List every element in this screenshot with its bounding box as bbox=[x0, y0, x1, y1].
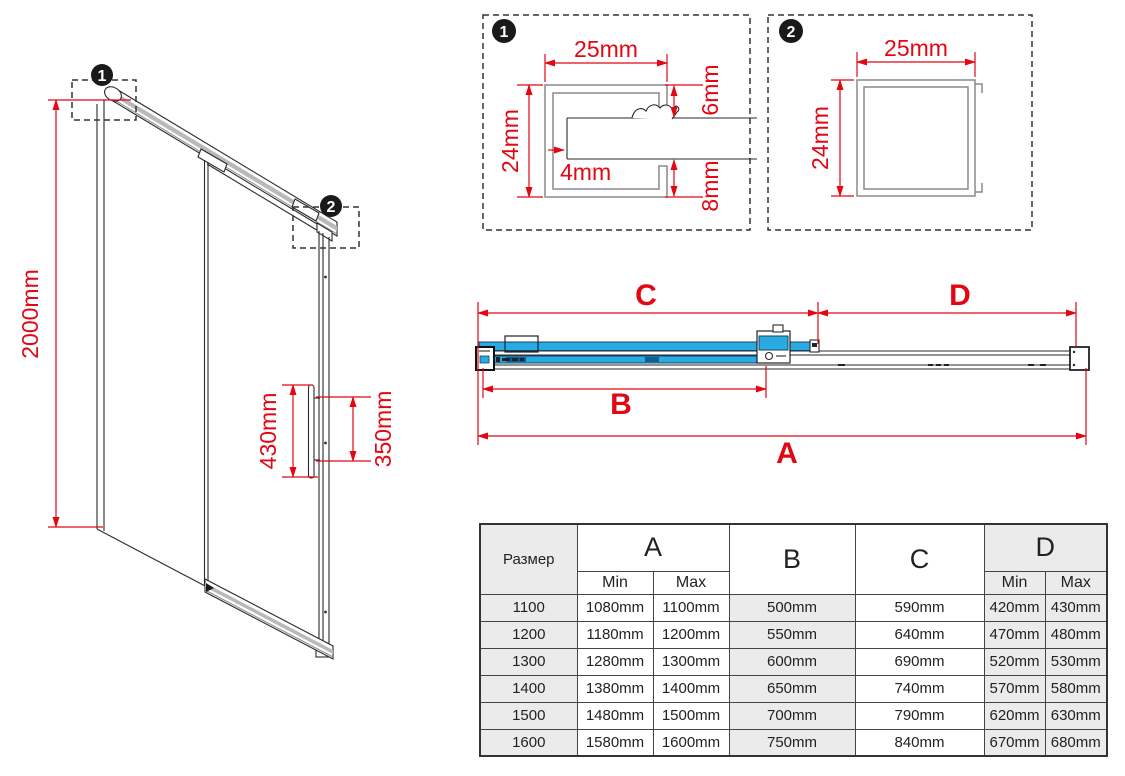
column-header-a: A bbox=[577, 524, 729, 571]
c-cell: 840mm bbox=[855, 729, 984, 756]
a-min-cell: 1480mm bbox=[577, 702, 653, 729]
profile-detail-2: 2 25mm 24mm bbox=[768, 15, 1032, 230]
handle-dim-label: 430mm bbox=[255, 393, 281, 470]
c-cell: 640mm bbox=[855, 621, 984, 648]
height-dim-label: 2000mm bbox=[17, 269, 43, 358]
plan-view-drawing: C D B A bbox=[476, 279, 1089, 470]
square-profile-outer bbox=[857, 80, 975, 196]
size-column-header: Размер bbox=[480, 524, 577, 594]
detail-1-top-inset-label: 6mm bbox=[697, 64, 723, 115]
d-max-header: Max bbox=[1045, 571, 1107, 594]
size-spec-table: Размер A B C D Min Max Min Max 1100 1080… bbox=[479, 523, 1108, 757]
column-header-d: D bbox=[984, 524, 1107, 571]
detail-1-number: 1 bbox=[500, 24, 509, 41]
b-cell: 550mm bbox=[729, 621, 855, 648]
d-max-cell: 630mm bbox=[1045, 702, 1107, 729]
a-min-cell: 1180mm bbox=[577, 621, 653, 648]
detail-1-height-label: 24mm bbox=[497, 109, 523, 173]
a-min-cell: 1580mm bbox=[577, 729, 653, 756]
fixed-panel-bottom-edge bbox=[97, 529, 207, 587]
glass-clip-seal bbox=[632, 105, 679, 119]
b-cell: 650mm bbox=[729, 675, 855, 702]
d-min-header: Min bbox=[984, 571, 1045, 594]
table-row: 1200 1180mm 1200mm 550mm 640mm 470mm 480… bbox=[480, 621, 1107, 648]
a-max-cell: 1500mm bbox=[653, 702, 729, 729]
plan-dim-c-label: C bbox=[635, 279, 657, 312]
b-cell: 750mm bbox=[729, 729, 855, 756]
plan-dim-b-label: B bbox=[610, 388, 632, 421]
wall-bracket-right bbox=[1070, 347, 1089, 370]
table-row: 1400 1380mm 1400mm 650mm 740mm 570mm 580… bbox=[480, 675, 1107, 702]
d-max-cell: 580mm bbox=[1045, 675, 1107, 702]
d-min-cell: 620mm bbox=[984, 702, 1045, 729]
size-cell: 1500 bbox=[480, 702, 577, 729]
c-cell: 590mm bbox=[855, 594, 984, 621]
detail-1-width-label: 25mm bbox=[574, 36, 638, 62]
d-max-cell: 680mm bbox=[1045, 729, 1107, 756]
size-cell: 1200 bbox=[480, 621, 577, 648]
detail-1-bottom-inset-label: 8mm bbox=[697, 160, 723, 211]
a-max-header: Max bbox=[653, 571, 729, 594]
a-max-cell: 1300mm bbox=[653, 648, 729, 675]
profile-detail-1: 1 25mm 24mm 6mm 8mm 4mm bbox=[483, 15, 757, 230]
d-min-cell: 520mm bbox=[984, 648, 1045, 675]
a-min-cell: 1380mm bbox=[577, 675, 653, 702]
square-profile-inner bbox=[864, 87, 968, 189]
shower-door-spec-sheet: 1 2 2000mm 430mm 350mm 1 2 bbox=[0, 0, 1125, 776]
b-cell: 600mm bbox=[729, 648, 855, 675]
d-max-cell: 430mm bbox=[1045, 594, 1107, 621]
size-cell: 1100 bbox=[480, 594, 577, 621]
a-max-cell: 1600mm bbox=[653, 729, 729, 756]
table-row: 1600 1580mm 1600mm 750mm 840mm 670mm 680… bbox=[480, 729, 1107, 756]
a-max-cell: 1200mm bbox=[653, 621, 729, 648]
a-min-cell: 1080mm bbox=[577, 594, 653, 621]
table-row: 1100 1080mm 1100mm 500mm 590mm 420mm 430… bbox=[480, 594, 1107, 621]
d-min-cell: 570mm bbox=[984, 675, 1045, 702]
table-row: 1500 1480mm 1500mm 700mm 790mm 620mm 630… bbox=[480, 702, 1107, 729]
b-cell: 500mm bbox=[729, 594, 855, 621]
callout-1-number: 1 bbox=[98, 68, 107, 85]
door-handle bbox=[309, 385, 315, 478]
size-table: Размер A B C D Min Max Min Max 1100 1080… bbox=[479, 523, 1108, 757]
isometric-door-drawing: 1 2 2000mm 430mm 350mm bbox=[17, 64, 396, 659]
size-cell: 1300 bbox=[480, 648, 577, 675]
c-cell: 790mm bbox=[855, 702, 984, 729]
d-min-cell: 470mm bbox=[984, 621, 1045, 648]
d-min-cell: 670mm bbox=[984, 729, 1045, 756]
size-cell: 1600 bbox=[480, 729, 577, 756]
column-header-c: C bbox=[855, 524, 984, 594]
a-max-cell: 1400mm bbox=[653, 675, 729, 702]
callout-2-number: 2 bbox=[327, 199, 336, 216]
a-max-cell: 1100mm bbox=[653, 594, 729, 621]
c-cell: 740mm bbox=[855, 675, 984, 702]
detail-2-height-label: 24mm bbox=[807, 106, 833, 170]
door-top-edge bbox=[207, 164, 320, 232]
column-header-b: B bbox=[729, 524, 855, 594]
handle-holes-dim-label: 350mm bbox=[370, 391, 396, 468]
d-min-cell: 420mm bbox=[984, 594, 1045, 621]
a-min-cell: 1280mm bbox=[577, 648, 653, 675]
c-cell: 690mm bbox=[855, 648, 984, 675]
b-cell: 700mm bbox=[729, 702, 855, 729]
d-max-cell: 530mm bbox=[1045, 648, 1107, 675]
a-min-header: Min bbox=[577, 571, 653, 594]
plan-dim-a-label: A bbox=[776, 437, 798, 470]
d-max-cell: 480mm bbox=[1045, 621, 1107, 648]
table-row: 1300 1280mm 1300mm 600mm 690mm 520mm 530… bbox=[480, 648, 1107, 675]
detail-2-number: 2 bbox=[787, 24, 796, 41]
plan-dim-d-label: D bbox=[949, 279, 971, 312]
detail-2-width-label: 25mm bbox=[884, 35, 948, 61]
detail-1-slot-label: 4mm bbox=[560, 159, 611, 185]
size-cell: 1400 bbox=[480, 675, 577, 702]
